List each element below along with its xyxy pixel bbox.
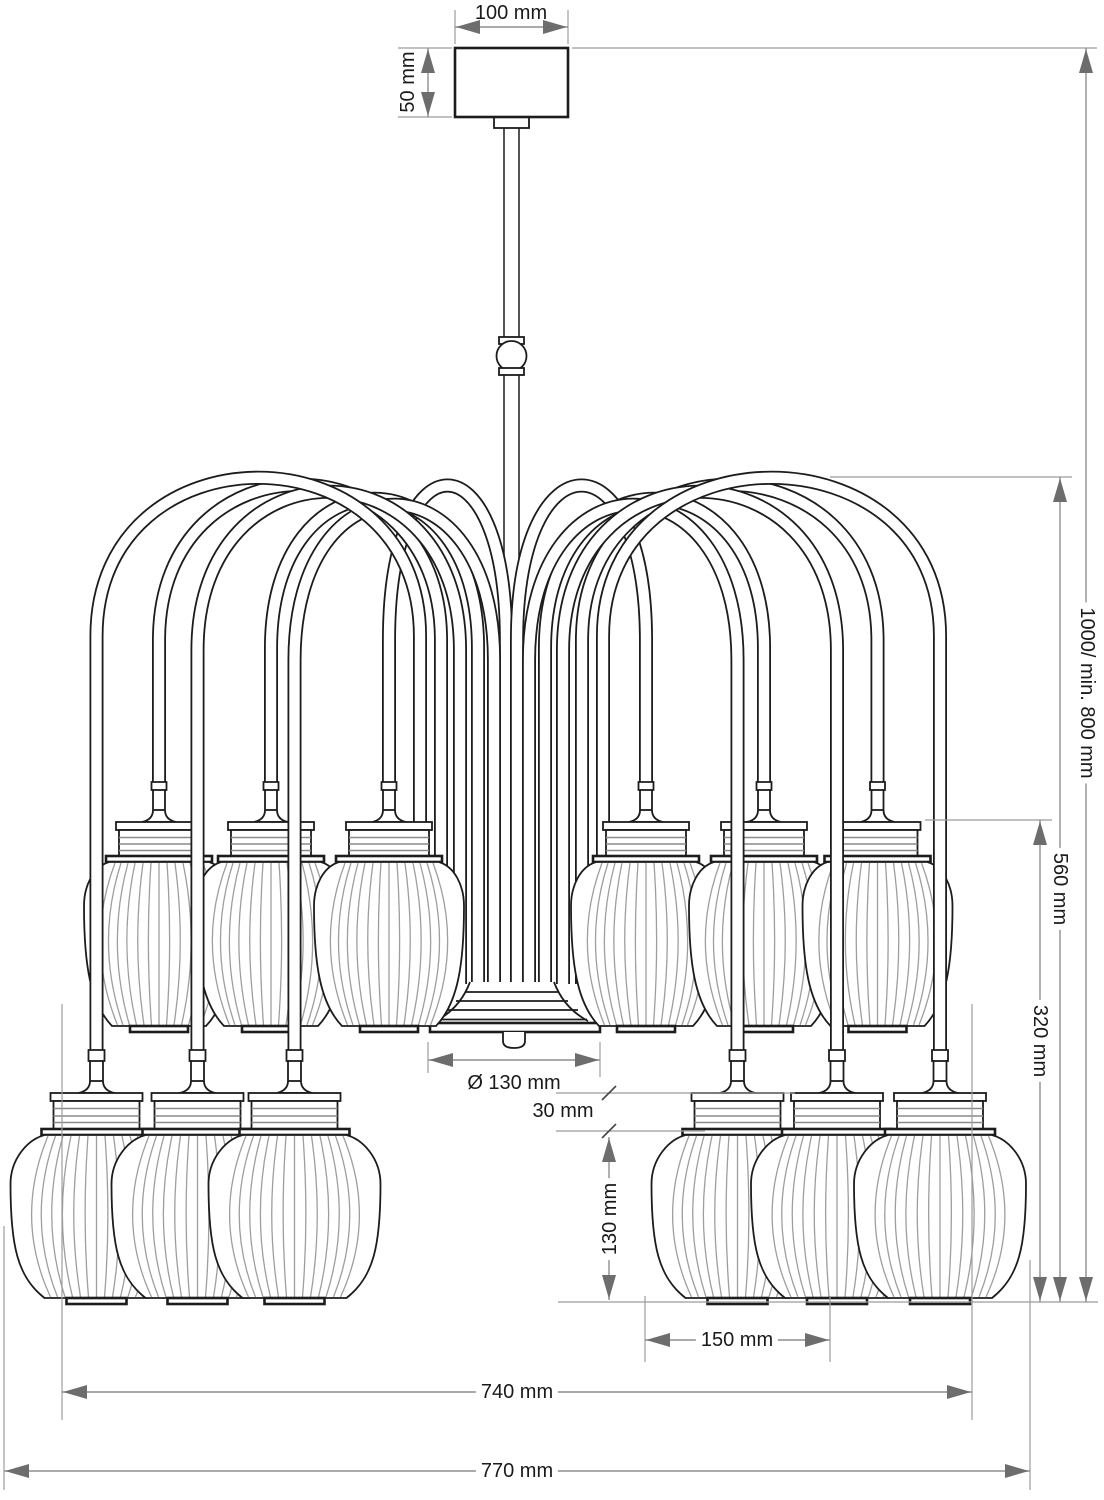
dim-holder-height-label: 30 mm (532, 1100, 593, 1122)
dim-canopy-width-label: 100 mm (475, 2, 547, 24)
dim-canopy-height-label: 50 mm (397, 51, 419, 112)
hub-plate (430, 1023, 600, 1032)
dim-overall-width-label: 770 mm (476, 1460, 558, 1482)
hub-finial (503, 1032, 525, 1048)
dim-inner-width-label: 740 mm (476, 1381, 558, 1403)
dim-shade-height-label: 130 mm (599, 1178, 621, 1260)
dim-hub-diameter-label: Ø 130 mm (467, 1072, 560, 1094)
dim-shade-width-label: 150 mm (696, 1329, 778, 1351)
dim-lower-tier-height-label: 320 mm (1029, 1000, 1051, 1082)
technical-drawing: 100 mm 50 mm 1000/ min. 800 mm 560 mm 32… (0, 0, 1104, 1500)
canopy-collar (494, 117, 529, 128)
dim-frame-height-label: 560 mm (1049, 848, 1071, 930)
dim-overall-height-label: 1000/ min. 800 mm (1076, 602, 1098, 783)
chandelier-drawing (0, 0, 1104, 1500)
rod-ball (497, 337, 527, 375)
ceiling-canopy (455, 48, 568, 117)
